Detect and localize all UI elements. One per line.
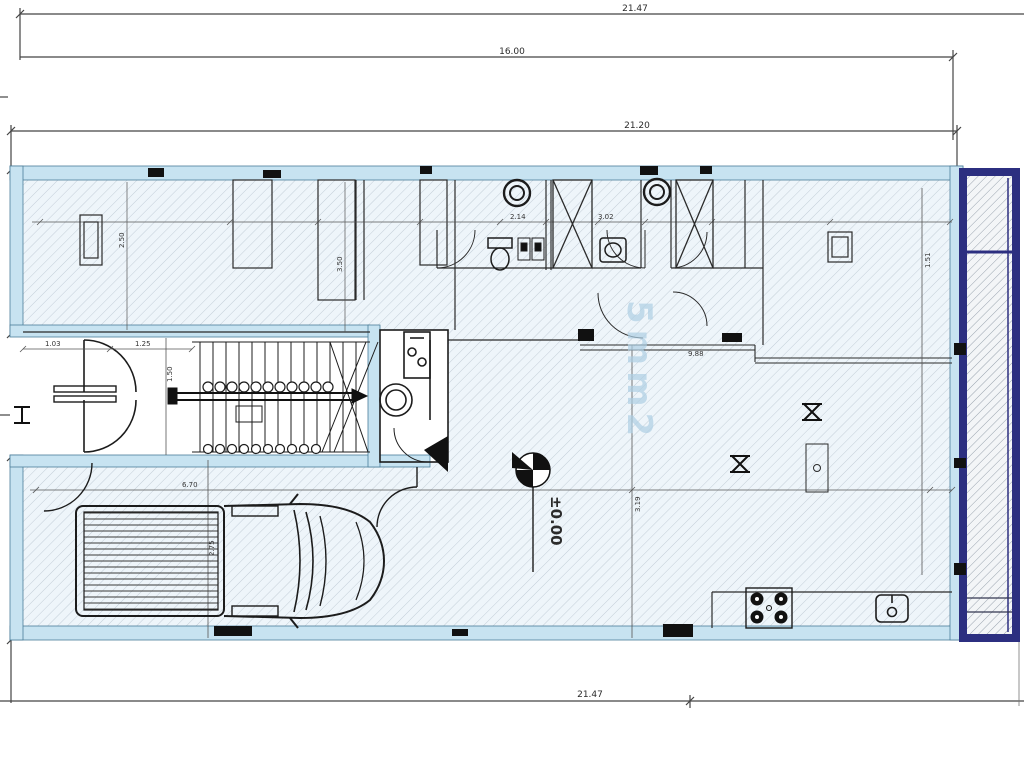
dim-label-ledge: 9.88 [688,350,704,358]
dim-label-hall-h2: 3.50 [336,256,344,272]
dim-label-overall-bottom: 21.47 [577,690,603,700]
dim-label-bath1: 2.14 [510,213,526,221]
dim-label-garage: 6.70 [182,481,198,489]
dim-label-upper: 16.00 [499,47,525,57]
floorplan-screenshot: 21.47 16.00 21.20 21.47 [0,0,1024,768]
dim-label-stair-w: 1.50 [166,366,174,382]
dim-label-living: 3.19 [634,496,642,512]
dim-label-overall-top: 21.47 [622,4,648,14]
dim-label-entry1: 1.03 [45,340,61,348]
dim-label-bath2: 3.02 [598,213,614,221]
adjacent-shaft [954,172,1016,638]
watermark-text: 5mm2 [619,300,659,442]
level-marker-label: ±0.00 [547,496,565,546]
dim-label-right: 1.51 [924,252,932,268]
dim-label-entry2: 1.25 [135,340,151,348]
floor-plan-canvas: 21.47 16.00 21.20 21.47 [0,0,1024,768]
dim-label-inner-top: 21.20 [624,121,650,131]
dim-label-hall-h: 2.50 [118,232,126,248]
